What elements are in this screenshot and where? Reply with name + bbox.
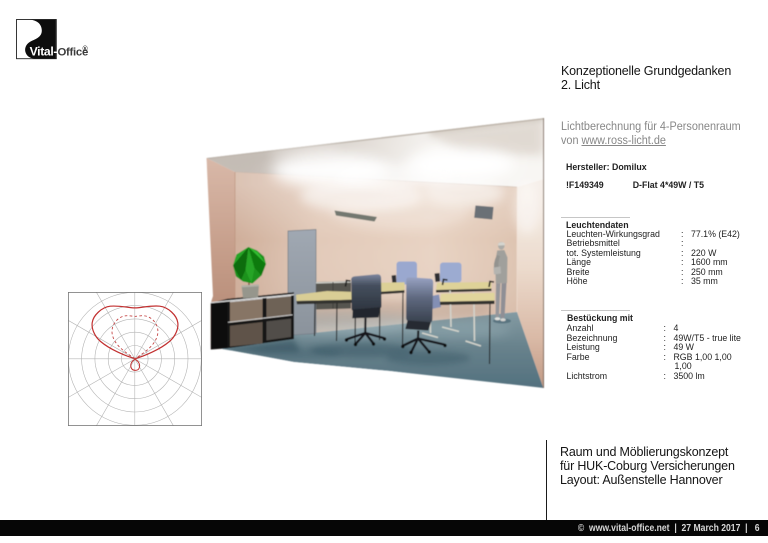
svg-text:®: ® bbox=[83, 45, 89, 53]
svg-text:Vital-: Vital- bbox=[30, 44, 58, 58]
